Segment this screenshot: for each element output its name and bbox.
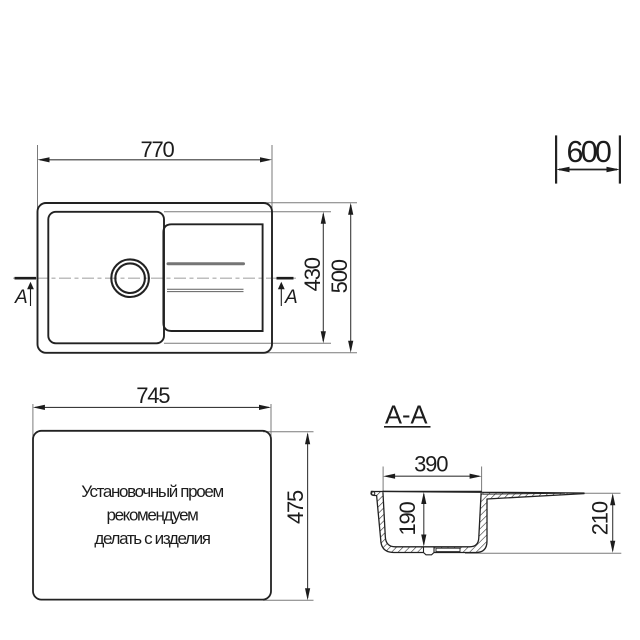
svg-text:рекомендуем: рекомендуем [106, 506, 198, 525]
svg-text:770: 770 [140, 137, 174, 162]
svg-text:475: 475 [283, 490, 308, 524]
svg-text:500: 500 [327, 259, 352, 293]
svg-text:A-A: A-A [385, 402, 428, 430]
svg-text:A: A [14, 287, 27, 308]
svg-text:745: 745 [136, 383, 170, 408]
svg-text:A: A [284, 287, 297, 308]
svg-text:210: 210 [588, 501, 613, 535]
svg-text:430: 430 [300, 257, 325, 291]
svg-text:Установочный проем: Установочный проем [81, 482, 223, 501]
svg-text:делать с изделия: делать с изделия [94, 529, 210, 548]
svg-text:190: 190 [395, 501, 420, 535]
svg-text:390: 390 [414, 452, 448, 477]
svg-text:600: 600 [567, 135, 611, 169]
